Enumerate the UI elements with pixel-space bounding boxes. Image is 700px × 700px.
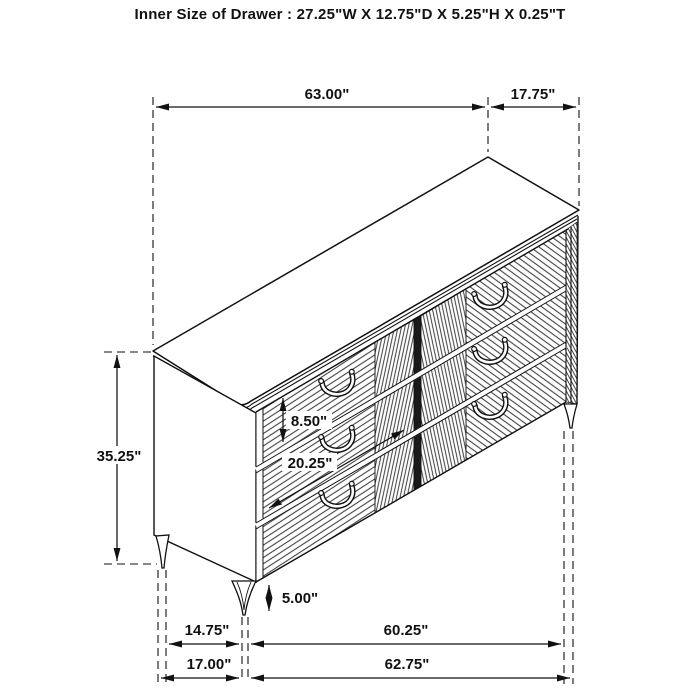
dim-leg-height-label: 5.00"	[282, 590, 318, 607]
dim-leg-span-width-label: 60.25"	[384, 622, 429, 639]
dim-base-depth-label: 17.00"	[187, 656, 232, 673]
dim-top-depth: 17.75"	[491, 85, 576, 107]
dim-body-height-label: 35.25"	[97, 448, 142, 465]
front-right-leg	[564, 404, 577, 428]
dim-base-width-label: 62.75"	[385, 656, 430, 673]
dim-top-width-label: 63.00"	[305, 86, 350, 103]
dim-top-depth-label: 17.75"	[511, 86, 556, 103]
back-left-leg	[156, 535, 169, 568]
dim-base-width: 62.75"	[251, 655, 570, 678]
left-bank-chevron-face	[375, 320, 414, 513]
right-bank-chevron-face	[421, 289, 466, 486]
dim-base-side-inset-label: 14.75"	[185, 622, 230, 639]
dimension-diagram-page: Inner Size of Drawer : 27.25"W X 12.75"D…	[0, 0, 700, 700]
dim-base-side-inset: 14.75"	[169, 621, 239, 644]
dim-base-depth: 17.00"	[161, 655, 239, 678]
dim-drawer-height-label: 8.50"	[291, 413, 327, 430]
center-divider	[414, 316, 421, 490]
dresser	[153, 157, 579, 615]
front-left-stile	[256, 408, 263, 582]
dresser-dimension-drawing: 63.00" 17.75" 35.25" 8.50" 20.25"	[0, 0, 700, 700]
dim-leg-span-width: 60.25"	[251, 621, 561, 644]
dim-body-height: 35.25"	[92, 355, 147, 561]
dim-top-width: 63.00"	[156, 85, 485, 107]
dim-leg-height: 5.00"	[269, 585, 323, 611]
dim-drawer-width-label: 20.25"	[288, 455, 333, 472]
